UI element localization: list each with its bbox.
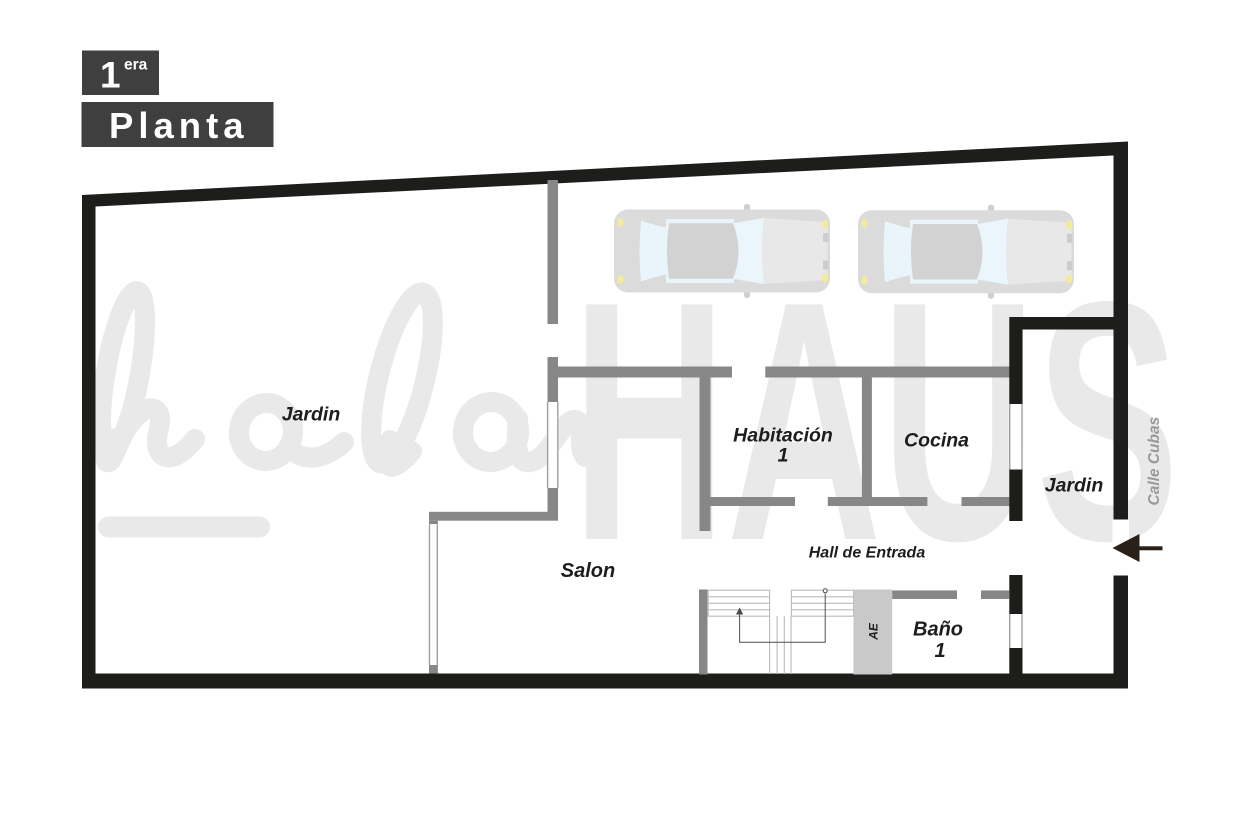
svg-text:1: 1 — [934, 640, 945, 662]
svg-text:era: era — [124, 57, 148, 74]
svg-text:Jardin: Jardin — [1045, 475, 1104, 497]
svg-text:Habitación: Habitación — [733, 425, 833, 447]
svg-text:1: 1 — [100, 55, 121, 96]
svg-text:Calle Cubas: Calle Cubas — [1146, 416, 1163, 505]
svg-text:Baño: Baño — [913, 619, 963, 641]
svg-text:AE: AE — [866, 622, 880, 641]
svg-text:Cocina: Cocina — [904, 430, 969, 452]
svg-text:Jardin: Jardin — [282, 404, 341, 426]
svg-text:Planta: Planta — [109, 105, 249, 146]
svg-text:Salon: Salon — [561, 560, 615, 582]
svg-text:Hall de Entrada: Hall de Entrada — [809, 545, 926, 562]
svg-text:1: 1 — [778, 445, 789, 467]
